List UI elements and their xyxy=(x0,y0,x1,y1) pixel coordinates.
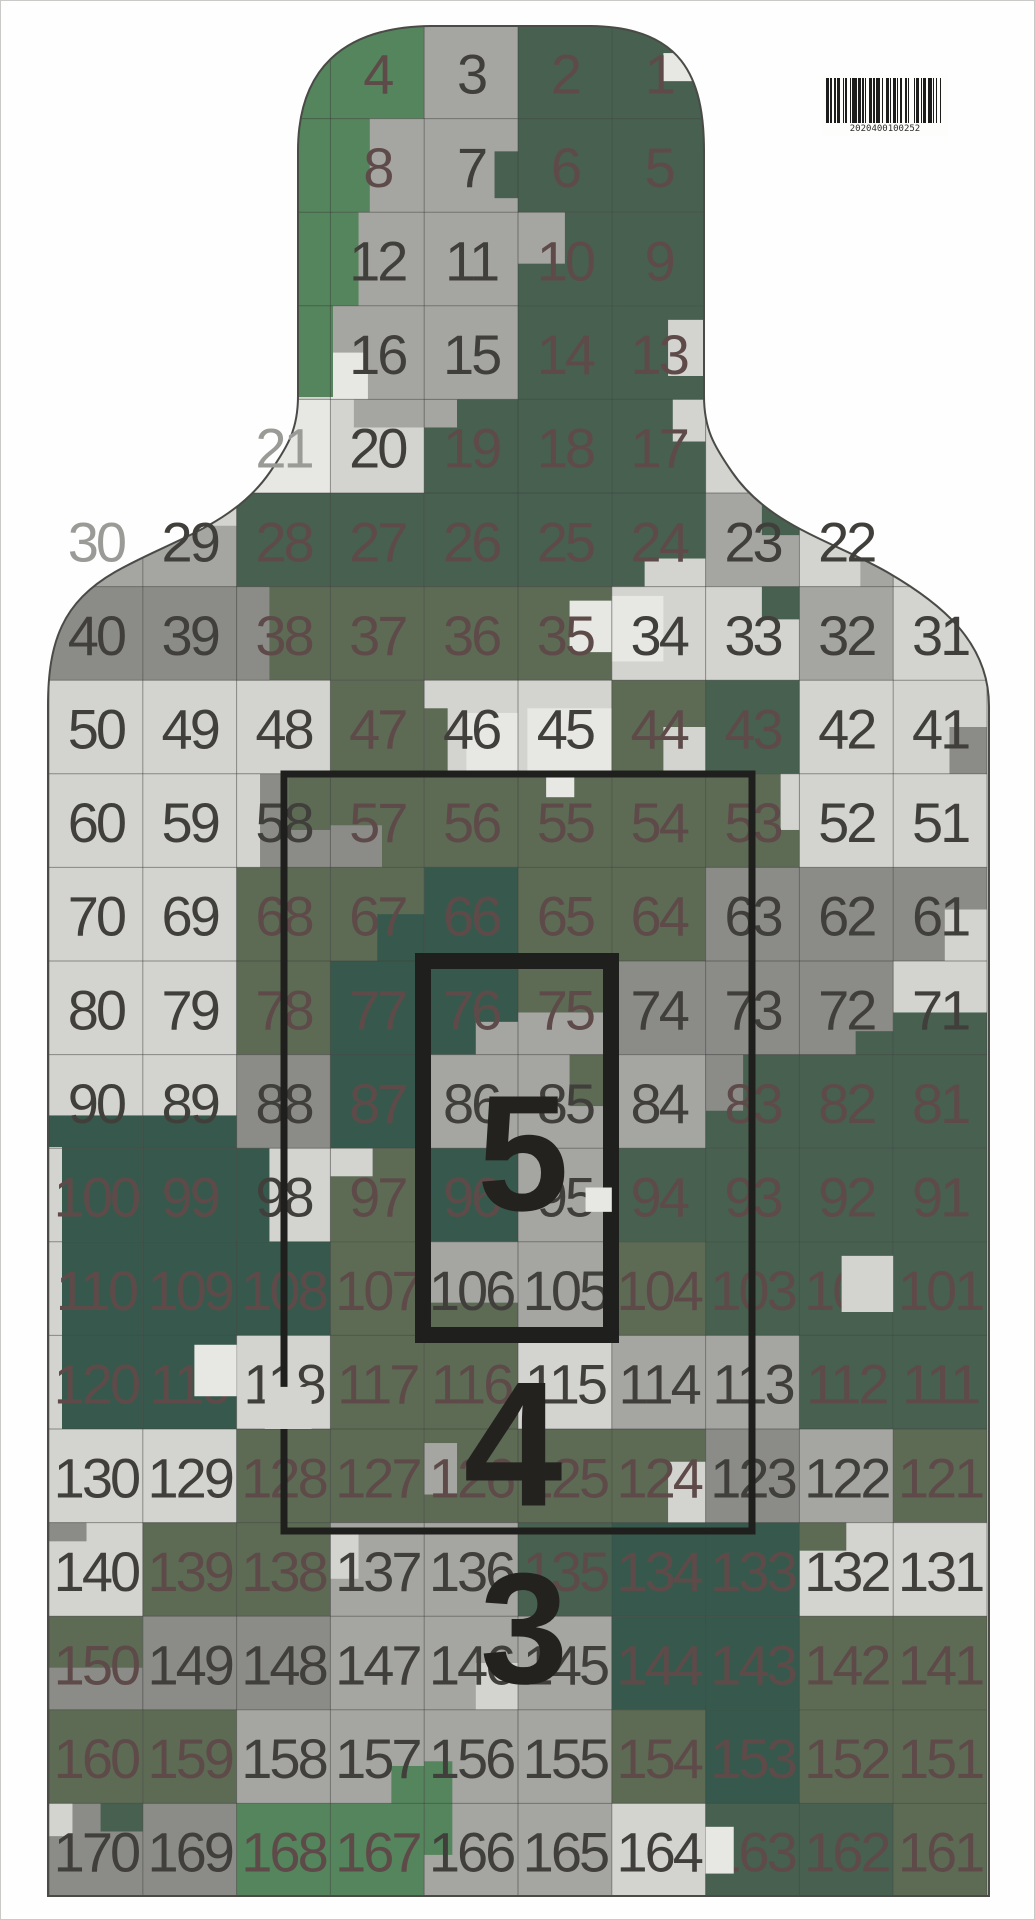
cell-number: 1 xyxy=(645,42,674,105)
cell-number: 168 xyxy=(241,1821,326,1884)
cell-number: 41 xyxy=(912,698,969,761)
cell-number: 65 xyxy=(537,885,594,948)
cell-number: 8 xyxy=(363,136,392,199)
cell-number: 56 xyxy=(443,791,500,854)
cell-number: 130 xyxy=(54,1446,139,1509)
cell-number: 12 xyxy=(349,230,406,293)
cell-number: 45 xyxy=(537,698,594,761)
cell-number: 134 xyxy=(616,1540,702,1603)
cell-number: 70 xyxy=(68,885,125,948)
cell-number: 66 xyxy=(443,885,500,948)
cell-number: 35 xyxy=(537,604,594,667)
cell-number: 55 xyxy=(537,791,594,854)
barcode-number: 2020400100252 xyxy=(826,123,944,135)
cell-number: 36 xyxy=(443,604,500,667)
cell-number: 157 xyxy=(335,1727,420,1790)
cell-number: 138 xyxy=(241,1540,326,1603)
cell-number: 80 xyxy=(68,978,125,1041)
cell-number: 79 xyxy=(162,978,219,1041)
cell-number: 100 xyxy=(54,1166,139,1229)
cell-number: 142 xyxy=(804,1634,889,1697)
camo-patch xyxy=(781,774,800,830)
cell-number: 149 xyxy=(147,1634,232,1697)
cell-number: 59 xyxy=(162,791,219,854)
cell-number: 106 xyxy=(429,1259,514,1322)
cell-number: 50 xyxy=(68,698,125,761)
cell-number: 92 xyxy=(818,1166,875,1229)
cell-number: 124 xyxy=(616,1446,702,1509)
cell-number: 84 xyxy=(631,1072,689,1135)
cell-number: 46 xyxy=(443,698,500,761)
cell-number: 10 xyxy=(537,230,594,293)
cell-number: 24 xyxy=(631,510,689,573)
cell-number: 156 xyxy=(429,1727,514,1790)
cell-number: 38 xyxy=(255,604,312,667)
cell-number: 120 xyxy=(54,1353,139,1416)
cell-number: 133 xyxy=(710,1540,795,1603)
score-zone-label-3: 3 xyxy=(480,1541,568,1717)
cell-number: 40 xyxy=(68,604,125,667)
cell-number: 147 xyxy=(335,1634,420,1697)
cell-number: 26 xyxy=(443,510,500,573)
cell-number: 75 xyxy=(537,978,594,1041)
cell-number: 90 xyxy=(68,1072,125,1135)
cell-number: 137 xyxy=(335,1540,420,1603)
cell-number: 4 xyxy=(363,42,393,105)
cell-number: 158 xyxy=(241,1727,326,1790)
cell-number: 94 xyxy=(631,1166,689,1229)
cell-number: 159 xyxy=(147,1727,232,1790)
score-zone-label-5: 5 xyxy=(477,1061,569,1245)
cell-number: 91 xyxy=(912,1166,969,1229)
cell-number: 15 xyxy=(443,323,500,386)
cell-number: 114 xyxy=(619,1353,701,1416)
cell-number: 11 xyxy=(445,230,498,293)
cell-number: 14 xyxy=(537,323,595,386)
cell-number: 139 xyxy=(147,1540,232,1603)
cell-number: 47 xyxy=(349,698,406,761)
cell-number: 39 xyxy=(162,604,219,667)
cell-number: 144 xyxy=(616,1634,702,1697)
cell-number: 48 xyxy=(255,698,312,761)
cell-number: 69 xyxy=(162,885,219,948)
cell-number: 60 xyxy=(68,791,125,854)
cell-number: 77 xyxy=(349,978,406,1041)
cell-number: 61 xyxy=(912,885,969,948)
cell-number: 152 xyxy=(804,1727,889,1790)
cell-number: 160 xyxy=(54,1727,139,1790)
cell-number: 164 xyxy=(616,1821,702,1884)
cell-number: 71 xyxy=(912,978,969,1041)
cell-number: 34 xyxy=(631,604,689,667)
cell-number: 28 xyxy=(255,510,312,573)
cell-number: 81 xyxy=(912,1072,969,1135)
cell-number: 29 xyxy=(162,510,219,573)
cell-number: 82 xyxy=(818,1072,875,1135)
cell-number: 148 xyxy=(241,1634,326,1697)
cell-number: 107 xyxy=(335,1259,420,1322)
cell-number: 112 xyxy=(806,1353,887,1416)
cell-number: 57 xyxy=(349,791,406,854)
cell-number: 109 xyxy=(147,1259,232,1322)
cell-number: 154 xyxy=(616,1727,702,1790)
cell-number: 132 xyxy=(804,1540,889,1603)
cell-number: 43 xyxy=(724,698,781,761)
cell-number: 33 xyxy=(724,604,781,667)
cell-number: 151 xyxy=(898,1727,983,1790)
cell-number: 169 xyxy=(147,1821,232,1884)
cell-number: 170 xyxy=(54,1821,139,1884)
cell-number: 121 xyxy=(898,1446,983,1509)
cell-number: 101 xyxy=(898,1259,983,1322)
cell-number: 140 xyxy=(54,1540,139,1603)
cell-number: 17 xyxy=(631,417,688,480)
camo-patch xyxy=(495,151,518,198)
cell-number: 72 xyxy=(818,978,875,1041)
cell-number: 166 xyxy=(429,1821,514,1884)
camo-patch-over xyxy=(842,1256,894,1312)
score-zone-labels: 543 xyxy=(464,1061,569,1717)
cell-number: 110 xyxy=(56,1259,137,1322)
cell-number: 18 xyxy=(537,417,594,480)
cell-number: 49 xyxy=(162,698,219,761)
cell-number: 44 xyxy=(631,698,689,761)
cell-number: 89 xyxy=(162,1072,219,1135)
cell-number: 31 xyxy=(912,604,969,667)
cell-number: 6 xyxy=(551,136,580,199)
camo-patch xyxy=(49,1523,87,1542)
cell-number: 111 xyxy=(902,1353,979,1416)
camo-patch xyxy=(297,29,333,397)
cell-number: 20 xyxy=(349,417,406,480)
cell-number: 143 xyxy=(710,1634,795,1697)
cell-number: 161 xyxy=(898,1821,983,1884)
camo-patch-over xyxy=(194,1345,236,1396)
cell-number: 21 xyxy=(255,417,312,480)
cell-number: 22 xyxy=(818,510,875,573)
cell-number: 167 xyxy=(335,1821,420,1884)
cell-number: 129 xyxy=(147,1446,232,1509)
cell-number: 51 xyxy=(912,791,969,854)
cell-number: 141 xyxy=(898,1634,983,1697)
cell-number: 87 xyxy=(349,1072,406,1135)
cell-number: 19 xyxy=(443,417,500,480)
cell-number: 62 xyxy=(818,885,875,948)
cell-number: 42 xyxy=(818,698,875,761)
cell-number: 150 xyxy=(54,1634,139,1697)
barcode-bar xyxy=(941,78,944,123)
cell-number: 52 xyxy=(818,791,875,854)
target-page: 4321876512111091615141321201918173029282… xyxy=(0,0,1035,1920)
cell-number: 122 xyxy=(804,1446,889,1509)
cell-number: 76 xyxy=(443,978,500,1041)
score-zone-label-4: 4 xyxy=(464,1345,563,1544)
cell-number: 67 xyxy=(349,885,406,948)
cell-number: 99 xyxy=(162,1166,219,1229)
cell-number: 64 xyxy=(631,885,689,948)
cell-number: 127 xyxy=(335,1446,420,1509)
cell-number: 104 xyxy=(616,1259,702,1322)
cell-number: 74 xyxy=(631,978,689,1041)
cell-number: 7 xyxy=(457,136,486,199)
camo-patch-over xyxy=(265,1387,312,1429)
cell-number: 9 xyxy=(645,230,674,293)
cell-number: 105 xyxy=(523,1259,608,1322)
cell-number: 153 xyxy=(710,1727,795,1790)
cell-number: 162 xyxy=(804,1821,889,1884)
cell-number: 117 xyxy=(337,1353,418,1416)
cell-number: 131 xyxy=(898,1540,983,1603)
cell-number: 97 xyxy=(349,1166,406,1229)
barcode-bars-icon xyxy=(826,78,944,123)
cell-number: 13 xyxy=(631,323,688,386)
target-silhouette-graphic: 4321876512111091615141321201918173029282… xyxy=(1,1,1035,1920)
cell-number: 5 xyxy=(645,136,674,199)
cell-number: 16 xyxy=(349,323,406,386)
cell-number: 165 xyxy=(523,1821,608,1884)
cell-number: 3 xyxy=(457,42,486,105)
cell-number: 27 xyxy=(349,510,406,573)
cell-number: 30 xyxy=(68,510,125,573)
cell-number: 23 xyxy=(724,510,781,573)
cell-number: 37 xyxy=(349,604,406,667)
cell-number: 25 xyxy=(537,510,594,573)
cell-number: 2 xyxy=(551,42,580,105)
cell-number: 155 xyxy=(523,1727,608,1790)
camo-patch-over xyxy=(586,1188,612,1212)
cell-number: 32 xyxy=(818,604,875,667)
cell-number: 54 xyxy=(631,791,689,854)
barcode: 2020400100252 xyxy=(822,74,948,136)
camo-patch-over xyxy=(706,1827,734,1874)
